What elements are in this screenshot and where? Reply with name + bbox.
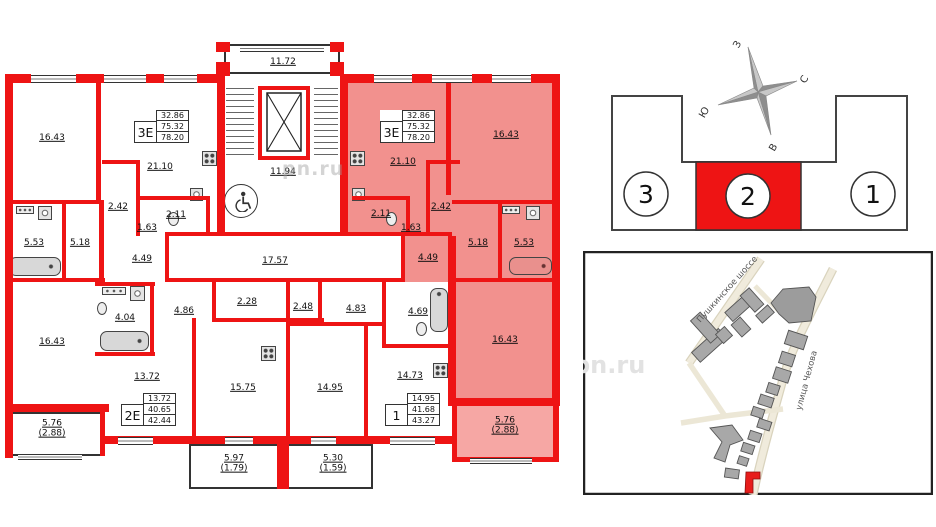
- wall-segment: [165, 232, 169, 282]
- room-area-label: 5.18: [70, 238, 90, 248]
- wall-segment: [553, 406, 559, 462]
- washer-icon: [130, 286, 145, 301]
- wall-segment: [95, 282, 155, 286]
- wheelchair-icon: [230, 190, 252, 212]
- wall-segment: [401, 232, 405, 282]
- wall-segment: [452, 406, 457, 460]
- room-area-label: 16.43: [39, 337, 65, 347]
- balcony-area-reduced: (1.59): [319, 464, 346, 474]
- balcony-area: 5.76: [495, 416, 515, 426]
- wall-segment: [62, 204, 66, 280]
- balcony-area: 5.30: [323, 454, 343, 464]
- apartment-info-table: 32.86 3Е 75.32 78.20: [134, 110, 189, 143]
- window: [374, 75, 412, 83]
- room-area-label: 4.83: [346, 304, 366, 314]
- watermark: pn.ru: [282, 158, 344, 180]
- wall-segment: [140, 196, 210, 200]
- apartment-type-badge: 2Е: [121, 404, 144, 426]
- room-area-label: 1.63: [401, 223, 421, 233]
- wall-segment: [5, 200, 101, 204]
- floorplan-listing-image: 16.43 21.10 2.42 2.11 1.63 5.53 5.18 4.4…: [0, 0, 936, 527]
- room-area-label: 21.10: [390, 157, 416, 167]
- bathtub-icon: [509, 257, 552, 275]
- stairs-hatch: [226, 88, 254, 156]
- sink-icon: [102, 287, 126, 295]
- compass-south-label: Ю: [697, 105, 712, 120]
- apartment-type-badge: 1: [385, 404, 408, 426]
- balcony-area-label: 5.30 (1.59): [319, 454, 346, 475]
- wall-segment: [448, 236, 456, 402]
- wall-segment: [382, 278, 386, 348]
- sink-icon: [16, 206, 34, 214]
- wall-segment: [5, 74, 13, 458]
- wall-segment: [217, 74, 225, 236]
- window: [104, 75, 146, 83]
- window: [492, 75, 531, 83]
- apartment-info-table: 13.72 2Е 40.65 42.44: [121, 393, 176, 426]
- window: [164, 75, 197, 83]
- wall-segment: [452, 278, 552, 282]
- room-area-label: 13.72: [134, 372, 160, 382]
- compass-west-label: З: [731, 39, 744, 50]
- wall-segment: [102, 160, 140, 164]
- balcony-area-label: 5.97 (1.79): [220, 454, 247, 475]
- balcony-area-label: 5.76 (2.88): [491, 416, 518, 437]
- wall-segment: [192, 318, 196, 436]
- stove-icon: [261, 346, 276, 361]
- section-number: 3: [638, 180, 654, 209]
- room-area-label: 2.28: [237, 297, 257, 307]
- room-area-label: 4.49: [132, 254, 152, 264]
- wall-segment: [352, 196, 410, 200]
- wall-segment: [426, 160, 430, 236]
- window: [31, 75, 76, 83]
- wall-segment: [498, 204, 502, 280]
- washer-icon: [526, 206, 540, 220]
- wall-segment: [5, 74, 31, 83]
- wall-segment: [384, 344, 450, 348]
- stove-icon: [202, 151, 217, 166]
- apartment-info-table: 32.86 3Е 75.32 78.20: [380, 110, 435, 143]
- elevator-x-icon: [262, 90, 306, 156]
- wall-segment: [446, 83, 451, 195]
- room-area-label: 5.53: [514, 238, 534, 248]
- compass-north-label: С: [798, 74, 811, 86]
- wall-segment: [318, 278, 322, 324]
- apartment-type-badge: 3Е: [134, 121, 157, 143]
- wall-segment: [216, 62, 230, 76]
- window: [225, 437, 253, 445]
- window: [18, 454, 82, 460]
- section-number-active: 2: [740, 182, 756, 211]
- wall-segment: [146, 74, 164, 83]
- wall-segment: [76, 74, 104, 83]
- wall-segment: [99, 200, 104, 282]
- room-area-label: 2.42: [108, 202, 128, 212]
- wall-segment: [552, 74, 560, 406]
- room-area-label: 2.42: [431, 202, 451, 212]
- watermark: pn.ru: [583, 351, 645, 379]
- room-area-label: 14.95: [317, 383, 343, 393]
- balcony-area: 5.97: [224, 454, 244, 464]
- compass-east-label: В: [767, 142, 780, 154]
- balcony-area-reduced: (2.88): [491, 426, 518, 436]
- apartment-info-table: 14.95 1 41.68 43.27: [385, 393, 440, 426]
- wall-segment: [100, 412, 105, 456]
- room-area-label: 16.43: [492, 335, 518, 345]
- stove-icon: [350, 151, 365, 166]
- apartment-total-area: 78.20: [156, 131, 189, 143]
- window: [470, 458, 532, 464]
- room-area-label: 15.75: [230, 383, 256, 393]
- window: [311, 437, 336, 445]
- toilet-icon: [416, 322, 427, 336]
- wall-segment: [320, 322, 386, 326]
- room-area-label: 5.53: [24, 238, 44, 248]
- sink-icon: [502, 206, 520, 214]
- section-number: 1: [865, 180, 881, 209]
- wall-segment: [426, 160, 460, 164]
- wall-segment: [165, 278, 405, 282]
- building-section-diagram: З С Ю В 3 2 1: [592, 30, 936, 235]
- room-area-label: 2.11: [371, 209, 391, 219]
- room-area-label: 2.48: [293, 302, 313, 312]
- room-area-label: 1.63: [137, 223, 157, 233]
- wall-segment: [364, 324, 368, 436]
- elevator-shaft: [258, 86, 310, 160]
- stairs-hatch: [314, 88, 338, 156]
- stair-landing-label: 11.72: [270, 57, 296, 67]
- window: [432, 75, 472, 83]
- wall-segment: [452, 200, 552, 204]
- room-area-label: 14.73: [397, 371, 423, 381]
- bathtub-icon: [100, 331, 149, 351]
- wall-segment: [5, 278, 105, 282]
- room-area-label: 21.10: [147, 162, 173, 172]
- wall-segment: [330, 42, 344, 52]
- location-map: pn.ru Пушкинское шоссе улиц: [583, 251, 933, 495]
- room-area-label: 16.43: [39, 133, 65, 143]
- window: [118, 437, 153, 445]
- bathtub-icon: [9, 257, 61, 276]
- wheelchair-access-badge: [224, 184, 258, 218]
- wall-segment: [448, 398, 560, 406]
- wall-segment: [212, 282, 216, 320]
- balcony-area-reduced: (1.79): [220, 464, 247, 474]
- bathtub-icon: [430, 288, 448, 332]
- wall-segment: [412, 74, 432, 83]
- wall-segment: [330, 62, 344, 76]
- apartment-total-area: 42.44: [143, 414, 176, 426]
- apartment-type-badge: 3Е: [380, 121, 403, 143]
- window: [240, 45, 324, 52]
- room-area-label: 16.43: [493, 130, 519, 140]
- room-area-label: 5.18: [468, 238, 488, 248]
- wall-segment: [286, 322, 324, 326]
- wall-segment: [150, 282, 154, 356]
- wall-segment: [96, 83, 101, 204]
- corridor-area-label: 17.57: [262, 256, 288, 266]
- apartment-total-area: 43.27: [407, 414, 440, 426]
- wall-segment: [206, 196, 210, 236]
- wall-segment: [348, 74, 374, 83]
- window: [390, 437, 435, 445]
- room-area-label: 4.49: [418, 253, 438, 263]
- room-area-label: 4.04: [115, 313, 135, 323]
- washer-icon: [38, 206, 52, 220]
- room-area-label: 4.86: [174, 306, 194, 316]
- wall-segment: [286, 278, 290, 322]
- wall-segment: [472, 74, 492, 83]
- wall-segment: [340, 74, 348, 236]
- wall-segment: [5, 404, 109, 412]
- wall-segment: [216, 42, 230, 52]
- compass-rose-icon: [718, 47, 797, 135]
- toilet-icon: [97, 302, 107, 315]
- balcony-area: 5.76: [42, 419, 62, 429]
- wall-segment: [286, 322, 290, 436]
- apartment-total-area: 78.20: [402, 131, 435, 143]
- balcony-area-label: 5.76 (2.88): [38, 419, 65, 440]
- balcony-area-reduced: (2.88): [38, 429, 65, 439]
- wall-segment: [95, 352, 155, 356]
- wall-segment: [277, 436, 289, 489]
- room-area-label: 2.11: [166, 210, 186, 220]
- room-area-label: 4.69: [408, 307, 428, 317]
- stove-icon: [433, 363, 448, 378]
